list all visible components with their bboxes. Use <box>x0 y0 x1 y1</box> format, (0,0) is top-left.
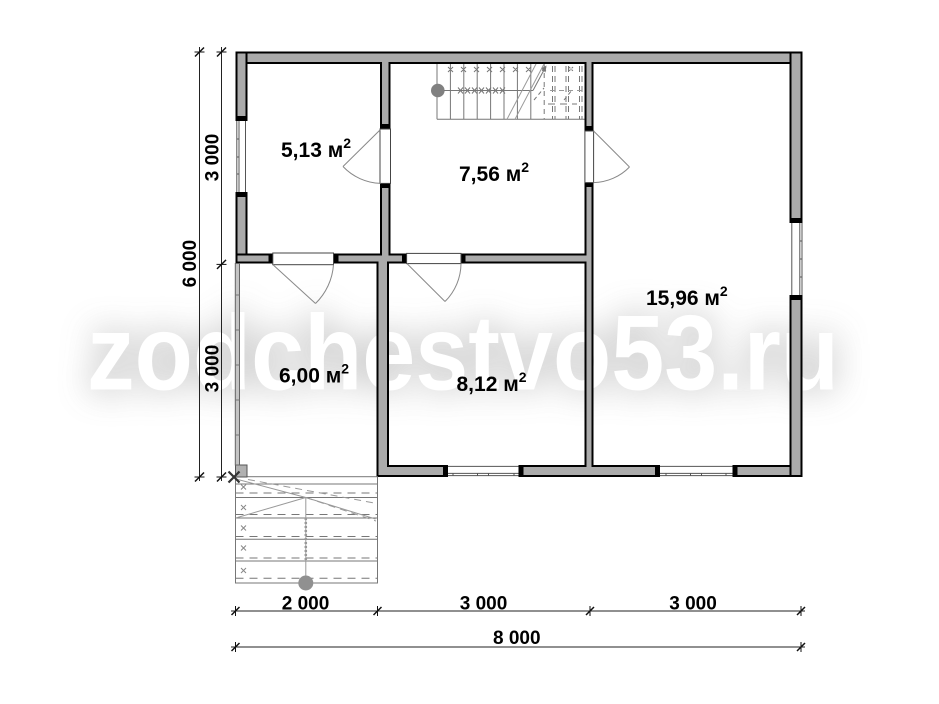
svg-text:8,12 м2: 8,12 м2 <box>457 369 527 396</box>
svg-text:6,00 м2: 6,00 м2 <box>279 361 349 388</box>
svg-text:5,13 м2: 5,13 м2 <box>281 135 351 162</box>
svg-text:3 000: 3 000 <box>460 594 508 615</box>
svg-text:2 000: 2 000 <box>282 594 330 615</box>
svg-text:3 000: 3 000 <box>202 345 223 393</box>
svg-text:6 000: 6 000 <box>180 240 201 288</box>
svg-text:8 000: 8 000 <box>493 628 541 649</box>
svg-text:3 000: 3 000 <box>669 594 717 615</box>
svg-text:7,56 м2: 7,56 м2 <box>459 159 529 186</box>
svg-text:15,96 м2: 15,96 м2 <box>646 283 728 310</box>
svg-text:3 000: 3 000 <box>202 134 223 182</box>
